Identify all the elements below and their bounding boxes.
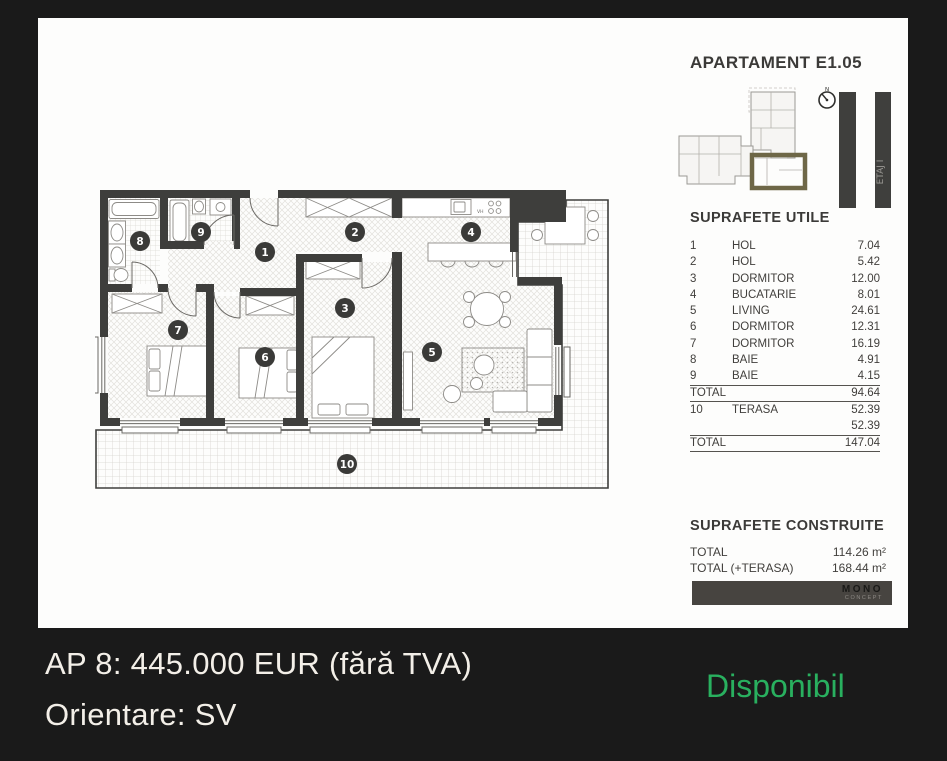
sink-icon [111,247,123,264]
table-row: 1HOL7.04 [690,238,880,254]
suprafete-utile-rows: 1HOL7.042HOL5.423DORMITOR12.004BUCATARIE… [690,238,880,385]
orientation-line: Orientare: SV [45,697,237,733]
compass-icon: N [819,87,835,108]
svg-text:6: 6 [261,352,268,364]
compass-and-floor-bars: N ETAJ I [813,86,895,212]
svg-text:9: 9 [197,227,204,239]
svg-text:5: 5 [428,347,435,359]
svg-text:10: 10 [340,459,355,471]
svg-text:1: 1 [261,247,268,259]
total-value: 94.64 [851,386,880,402]
floor-bar-1 [839,92,856,208]
closet-room6 [246,296,294,315]
room-name: HOL [732,238,858,254]
construite-label: TOTAL (+TERASA) [690,561,832,577]
apartment-title: APARTAMENT E1.05 [690,53,862,73]
table-row: 2HOL5.42 [690,254,880,270]
price-line: AP 8: 445.000 EUR (fără TVA) [45,646,472,682]
room-name: DORMITOR [732,336,851,352]
construite-value: 168.44 m² [832,561,886,577]
total-label: TOTAL [690,386,851,402]
construite-row: TOTAL (+TERASA) 168.44 m² [690,561,886,577]
room-index: 6 [690,319,732,335]
room-area: 24.61 [851,303,880,319]
armchair [444,386,461,403]
svg-text:4: 4 [467,227,474,239]
suprafete-construite-table: TOTAL 114.26 m² TOTAL (+TERASA) 168.44 m… [690,545,886,576]
terasa-extra-value: 52.39 [851,418,880,434]
terasa-row: 10 TERASA 52.39 [690,402,880,418]
building-site-plan [675,80,825,215]
room-name: BAIE [732,368,858,384]
sink-icon [111,224,123,241]
logo-subtext: CONCEPT [845,595,883,602]
dining-table [471,293,504,326]
floor-label: ETAJ I [876,160,886,185]
room-index: 2 [690,254,732,270]
room-name: LIVING [732,303,851,319]
room-name: DORMITOR [732,319,851,335]
room-area: 4.91 [858,352,880,368]
room-area: 5.42 [858,254,880,270]
listing-panel: VH 1 2 3 4 5 6 7 8 9 10 APARTAMENT E1.05 [38,18,908,628]
availability-status: Disponibil [706,668,845,705]
total-general-value: 147.04 [845,436,880,452]
apartment-highlight [752,155,805,188]
room-index: 8 [690,352,732,368]
table-rule [690,451,880,452]
svg-text:2: 2 [351,227,358,239]
room-area: 4.15 [858,368,880,384]
suprafete-utile-table: 1HOL7.042HOL5.423DORMITOR12.004BUCATARIE… [690,238,880,452]
room-index: 5 [690,303,732,319]
room-area: 8.01 [858,287,880,303]
construite-label: TOTAL [690,545,833,561]
room-index: 7 [690,336,732,352]
tv-unit [404,352,413,410]
room-index: 3 [690,271,732,287]
room-area: 12.31 [851,319,880,335]
toilet-icon [114,269,128,282]
svg-text:3: 3 [341,303,348,315]
suprafete-utile-heading: SUPRAFETE UTILE [690,210,830,226]
logo-text: MONO [842,585,883,595]
room-index: 4 [690,287,732,303]
room-area: 16.19 [851,336,880,352]
room-name: BAIE [732,352,858,368]
sofa [527,329,552,412]
bed-room7 [147,346,211,396]
developer-logo-bar: MONO CONCEPT [692,581,892,605]
room-index: 1 [690,238,732,254]
room-area: 7.04 [858,238,880,254]
table-row: 6DORMITOR12.31 [690,319,880,335]
suprafete-construite-heading: SUPRAFETE CONSTRUITE [690,518,884,534]
table-row: 5LIVING24.61 [690,303,880,319]
closet-hall2 [306,198,392,217]
coffee-table [474,355,494,375]
table-row: 8BAIE4.91 [690,352,880,368]
room-index: 10 [690,402,732,418]
table-row: 9BAIE4.15 [690,368,880,384]
kitchen-island [428,243,516,261]
construite-row: TOTAL 114.26 m² [690,545,886,561]
room-area: 52.39 [851,402,880,418]
svg-text:8: 8 [136,236,143,248]
room-name: TERASA [732,402,851,418]
floor-bar-2 [875,92,891,208]
table-row: 3DORMITOR12.00 [690,271,880,287]
room-name: BUCATARIE [732,287,858,303]
construite-value: 114.26 m² [833,545,886,561]
total-general-label: TOTAL [690,436,845,452]
total-utile-row: TOTAL 94.64 [690,386,880,402]
room-name: DORMITOR [732,271,851,287]
svg-text:7: 7 [174,325,181,337]
room-index: 9 [690,368,732,384]
vh-label: VH [477,209,483,215]
terasa-extra-row: 52.39 [690,418,880,434]
floor-plan: VH 1 2 3 4 5 6 7 8 9 10 [95,185,615,495]
total-general-row: TOTAL 147.04 [690,436,880,452]
bed-room3 [312,337,374,418]
room-area: 12.00 [851,271,880,287]
room-name: HOL [732,254,858,270]
table-row: 7DORMITOR16.19 [690,336,880,352]
table-row: 4BUCATARIE8.01 [690,287,880,303]
closet-room7 [112,294,162,313]
